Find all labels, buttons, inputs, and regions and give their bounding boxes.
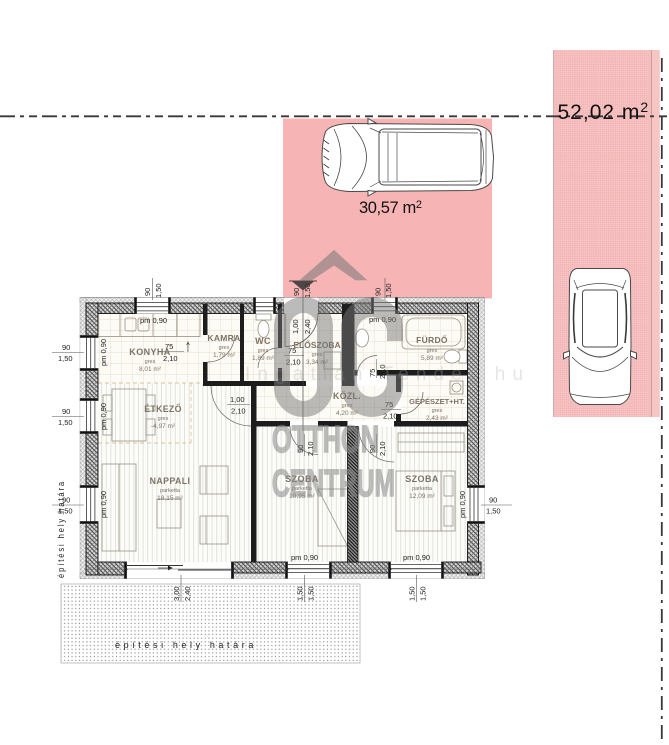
svg-text:2,40: 2,40 (303, 319, 312, 334)
svg-text:1,50: 1,50 (419, 586, 428, 601)
svg-text:1,50: 1,50 (408, 586, 417, 601)
svg-text:pm 0,90: pm 0,90 (140, 316, 167, 325)
svg-text:építési hely határa: építési hely határa (115, 640, 257, 650)
svg-text:gres: gres (145, 359, 156, 365)
svg-text:-4,97 m²: -4,97 m² (151, 423, 176, 430)
svg-text:1,50: 1,50 (486, 507, 501, 516)
svg-text:parketta: parketta (160, 488, 181, 494)
svg-text:pm 0,90: pm 0,90 (458, 491, 467, 518)
svg-text:1,50: 1,50 (296, 586, 305, 601)
svg-text:OTTHON: OTTHON (272, 419, 379, 461)
svg-text:gres: gres (158, 416, 169, 422)
svg-text:pm 0,90: pm 0,90 (291, 553, 318, 562)
svg-text:KONYHA: KONYHA (129, 347, 171, 357)
svg-text:90: 90 (374, 288, 383, 296)
svg-text:gres: gres (219, 345, 230, 351)
svg-text:SZOBA: SZOBA (405, 474, 439, 484)
svg-text:90: 90 (143, 288, 152, 296)
svg-text:építési hely határa: építési hely határa (56, 480, 66, 578)
svg-text:1,00: 1,00 (230, 395, 245, 404)
svg-text:CENTRUM: CENTRUM (272, 463, 395, 505)
svg-text:pm 0,90: pm 0,90 (403, 553, 430, 562)
svg-text:1,50: 1,50 (384, 283, 393, 298)
svg-text:2,40: 2,40 (183, 586, 192, 601)
svg-text:1,50: 1,50 (154, 283, 163, 298)
svg-text:KAMRA: KAMRA (207, 333, 240, 343)
svg-text:90: 90 (62, 407, 70, 416)
svg-text:1,79 m²: 1,79 m² (213, 352, 236, 359)
svg-text:1,50: 1,50 (58, 354, 73, 363)
svg-text:2,10: 2,10 (231, 407, 246, 416)
svg-text:FÜRDŐ: FÜRDŐ (416, 334, 448, 345)
svg-text:1,50: 1,50 (58, 418, 73, 427)
svg-text:3,00: 3,00 (172, 586, 181, 601)
svg-text:ÉTKEZŐ: ÉTKEZŐ (144, 403, 181, 414)
svg-text:90: 90 (489, 496, 497, 505)
svg-text:2,43 m²: 2,43 m² (426, 415, 449, 422)
svg-text:pm 0,90: pm 0,90 (99, 491, 108, 518)
svg-text:18,15 m²: 18,15 m² (157, 495, 183, 502)
svg-text:2,10: 2,10 (378, 441, 387, 456)
svg-text:90: 90 (292, 288, 301, 296)
svg-text:30,57 m2: 30,57 m2 (359, 199, 422, 217)
svg-text:gres: gres (258, 348, 269, 354)
svg-text:90: 90 (62, 343, 70, 352)
svg-text:GÉPÉSZET+HT.: GÉPÉSZET+HT. (409, 397, 465, 406)
svg-text:1,89 m²: 1,89 m² (252, 355, 275, 362)
svg-text:8,01 m²: 8,01 m² (139, 366, 162, 373)
svg-text:12,09 m²: 12,09 m² (409, 493, 435, 500)
svg-text:5,89 m²: 5,89 m² (421, 355, 444, 362)
svg-text:1,50: 1,50 (307, 586, 316, 601)
svg-text:pm 0,90: pm 0,90 (99, 403, 108, 430)
svg-text:pm 0,90: pm 0,90 (99, 339, 108, 366)
svg-text:WC: WC (255, 336, 271, 346)
svg-text:1,00: 1,00 (291, 319, 300, 334)
svg-text:parketta: parketta (412, 486, 433, 492)
svg-text:gres: gres (427, 348, 438, 354)
svg-text:52,02 m2: 52,02 m2 (558, 99, 650, 124)
svg-text:gres: gres (432, 408, 443, 414)
svg-text:NAPPALI: NAPPALI (150, 476, 191, 486)
